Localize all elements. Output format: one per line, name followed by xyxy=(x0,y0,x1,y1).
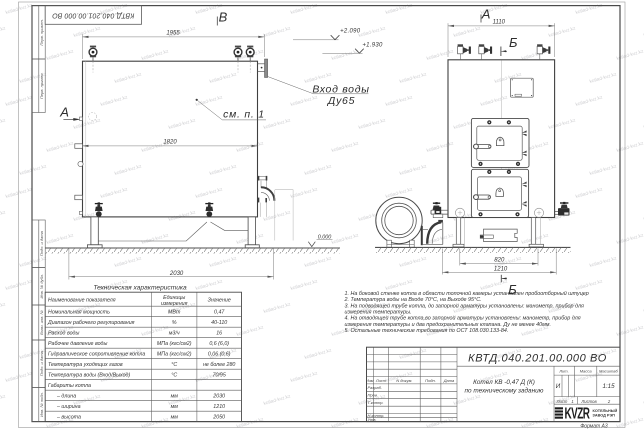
svg-text:1. На боковой стенке котла в: 1. На боковой стенке котла в области топ… xyxy=(345,290,589,297)
svg-text:Лит.: Лит. xyxy=(558,369,568,374)
svg-text:– ширина: – ширина xyxy=(56,404,81,410)
svg-text:0.000: 0.000 xyxy=(318,234,332,240)
svg-text:м3/ч: м3/ч xyxy=(169,331,180,337)
svg-text:измерения температуры.: измерения температуры. xyxy=(345,310,412,316)
svg-text:измерения температуры и два пр: измерения температуры и два предохраните… xyxy=(345,322,551,328)
svg-text:КОТЕЛЬНЫЙ: КОТЕЛЬНЫЙ xyxy=(593,409,618,413)
svg-text:Подп. и дата: Подп. и дата xyxy=(39,230,44,256)
svg-text:5. Остальные технические треб: 5. Остальные технические требования по О… xyxy=(345,328,509,334)
svg-text:КВТД.040.201.00.000 ВО: КВТД.040.201.00.000 ВО xyxy=(52,11,135,18)
svg-text:Расход воды: Расход воды xyxy=(48,331,79,337)
svg-text:1820: 1820 xyxy=(163,140,177,146)
svg-text:4. На отводящей трубе котла,в: 4. На отводящей трубе котла,во запорной … xyxy=(345,315,581,322)
svg-text:Б: Б xyxy=(508,282,517,297)
svg-text:МПа (кгс/см2): МПа (кгс/см2) xyxy=(157,352,192,358)
svg-text:Номинальная мощность: Номинальная мощность xyxy=(48,310,110,316)
svg-text:Пров.: Пров. xyxy=(368,393,379,398)
svg-text:А: А xyxy=(59,105,69,120)
svg-text:мм: мм xyxy=(171,394,179,400)
svg-text:0,6 (6,0): 0,6 (6,0) xyxy=(209,341,229,347)
svg-text:А: А xyxy=(481,7,491,22)
svg-text:Габариты котла: Габариты котла xyxy=(48,383,91,389)
svg-text:820: 820 xyxy=(494,258,505,264)
svg-text:0,06 (0,6): 0,06 (0,6) xyxy=(208,352,231,358)
svg-text:Дата: Дата xyxy=(443,378,455,383)
svg-text:Инв. № подл.: Инв. № подл. xyxy=(39,392,44,417)
svg-text:1210: 1210 xyxy=(494,266,508,272)
svg-text:МВт: МВт xyxy=(168,310,181,316)
svg-text:Гидравлическое сопротивление к: Гидравлическое сопротивление котла xyxy=(48,352,145,358)
svg-text:мм: мм xyxy=(171,404,179,410)
svg-text:1110: 1110 xyxy=(493,20,506,26)
svg-text:KVZR: KVZR xyxy=(565,404,591,422)
svg-text:Взам. инв. №: Взам. инв. № xyxy=(39,309,44,334)
svg-text:1: 1 xyxy=(571,399,573,404)
svg-text:0,47: 0,47 xyxy=(214,310,225,316)
svg-text:+2.090: +2.090 xyxy=(340,28,361,34)
svg-text:В: В xyxy=(219,9,228,24)
svg-text:Изм: Изм xyxy=(366,378,374,383)
svg-text:см. п. 1: см. п. 1 xyxy=(223,110,265,121)
svg-text:МПа (кгс/см2): МПа (кгс/см2) xyxy=(157,341,192,347)
svg-text:Котел КВ -0,47 Д (К): Котел КВ -0,47 Д (К) xyxy=(473,379,535,386)
svg-text:2030: 2030 xyxy=(169,271,184,277)
svg-text:16: 16 xyxy=(216,331,222,337)
svg-text:Подп. и дата: Подп. и дата xyxy=(39,350,44,376)
svg-text:N докум.: N докум. xyxy=(396,378,412,383)
svg-text:мм: мм xyxy=(171,415,179,421)
svg-text:Техническая характеристика: Техническая характеристика xyxy=(93,284,187,291)
svg-text:Лист: Лист xyxy=(556,399,568,404)
svg-text:Разраб.: Разраб. xyxy=(368,385,382,390)
svg-text:3. На подводящей трубе котла,: 3. На подводящей трубе котла, до запорно… xyxy=(345,302,585,309)
svg-text:Диапазон рабочего регулировани: Диапазон рабочего регулирования xyxy=(47,320,135,326)
svg-text:Ду65: Ду65 xyxy=(327,95,355,107)
svg-text:Перв. примен.: Перв. примен. xyxy=(39,72,44,99)
svg-text:2030: 2030 xyxy=(212,394,225,400)
svg-text:1210: 1210 xyxy=(213,404,225,410)
svg-text:1955: 1955 xyxy=(166,31,180,37)
svg-text:ЗАВОД РЭП: ЗАВОД РЭП xyxy=(593,414,616,418)
svg-text:40-110: 40-110 xyxy=(211,320,227,326)
svg-text:2. Температура воды на Входе: 2. Температура воды на Входе 70°С, на Вы… xyxy=(344,297,482,303)
svg-text:Б: Б xyxy=(509,35,518,50)
svg-text:Значение: Значение xyxy=(208,297,231,303)
svg-text:°С: °С xyxy=(171,373,177,379)
svg-text:°С: °С xyxy=(171,362,177,368)
svg-text:Формат А3: Формат А3 xyxy=(580,423,608,429)
svg-text:Вход воды: Вход воды xyxy=(312,84,369,96)
svg-text:70/95: 70/95 xyxy=(213,373,226,379)
svg-text:Температура уходящих газов: Температура уходящих газов xyxy=(48,362,123,368)
svg-text:И: И xyxy=(556,383,561,390)
svg-text:Перв. примен.: Перв. примен. xyxy=(39,19,44,46)
svg-text:Подп.: Подп. xyxy=(425,378,436,383)
svg-text:измерения: измерения xyxy=(161,301,188,307)
svg-text:Листов: Листов xyxy=(580,399,597,404)
svg-text:Утв.: Утв. xyxy=(368,417,377,422)
svg-text:Рабочее давление воды: Рабочее давление воды xyxy=(48,341,107,347)
svg-text:КВТД.040.201.00.000 ВО: КВТД.040.201.00.000 ВО xyxy=(468,352,607,364)
svg-text:не более 280: не более 280 xyxy=(203,362,235,368)
svg-text:2050: 2050 xyxy=(212,415,225,421)
svg-text:Т.контр.: Т.контр. xyxy=(368,400,384,405)
svg-text:Масштаб: Масштаб xyxy=(599,369,618,374)
svg-text:– длина: – длина xyxy=(56,394,76,400)
svg-text:Лист: Лист xyxy=(375,378,387,383)
svg-text:Инв. № дубл.: Инв. № дубл. xyxy=(39,274,44,299)
svg-text:1:15: 1:15 xyxy=(602,383,615,390)
svg-text:по техническому заданию: по техническому заданию xyxy=(465,386,544,394)
svg-text:Температура воды (Вход/Выход): Температура воды (Вход/Выход) xyxy=(48,373,130,379)
svg-text:Масса: Масса xyxy=(580,369,593,374)
svg-text:%: % xyxy=(172,320,177,326)
svg-text:Наименование показателя: Наименование показателя xyxy=(48,297,116,303)
svg-text:+1.930: +1.930 xyxy=(362,43,383,49)
svg-text:– высота: – высота xyxy=(56,415,81,421)
